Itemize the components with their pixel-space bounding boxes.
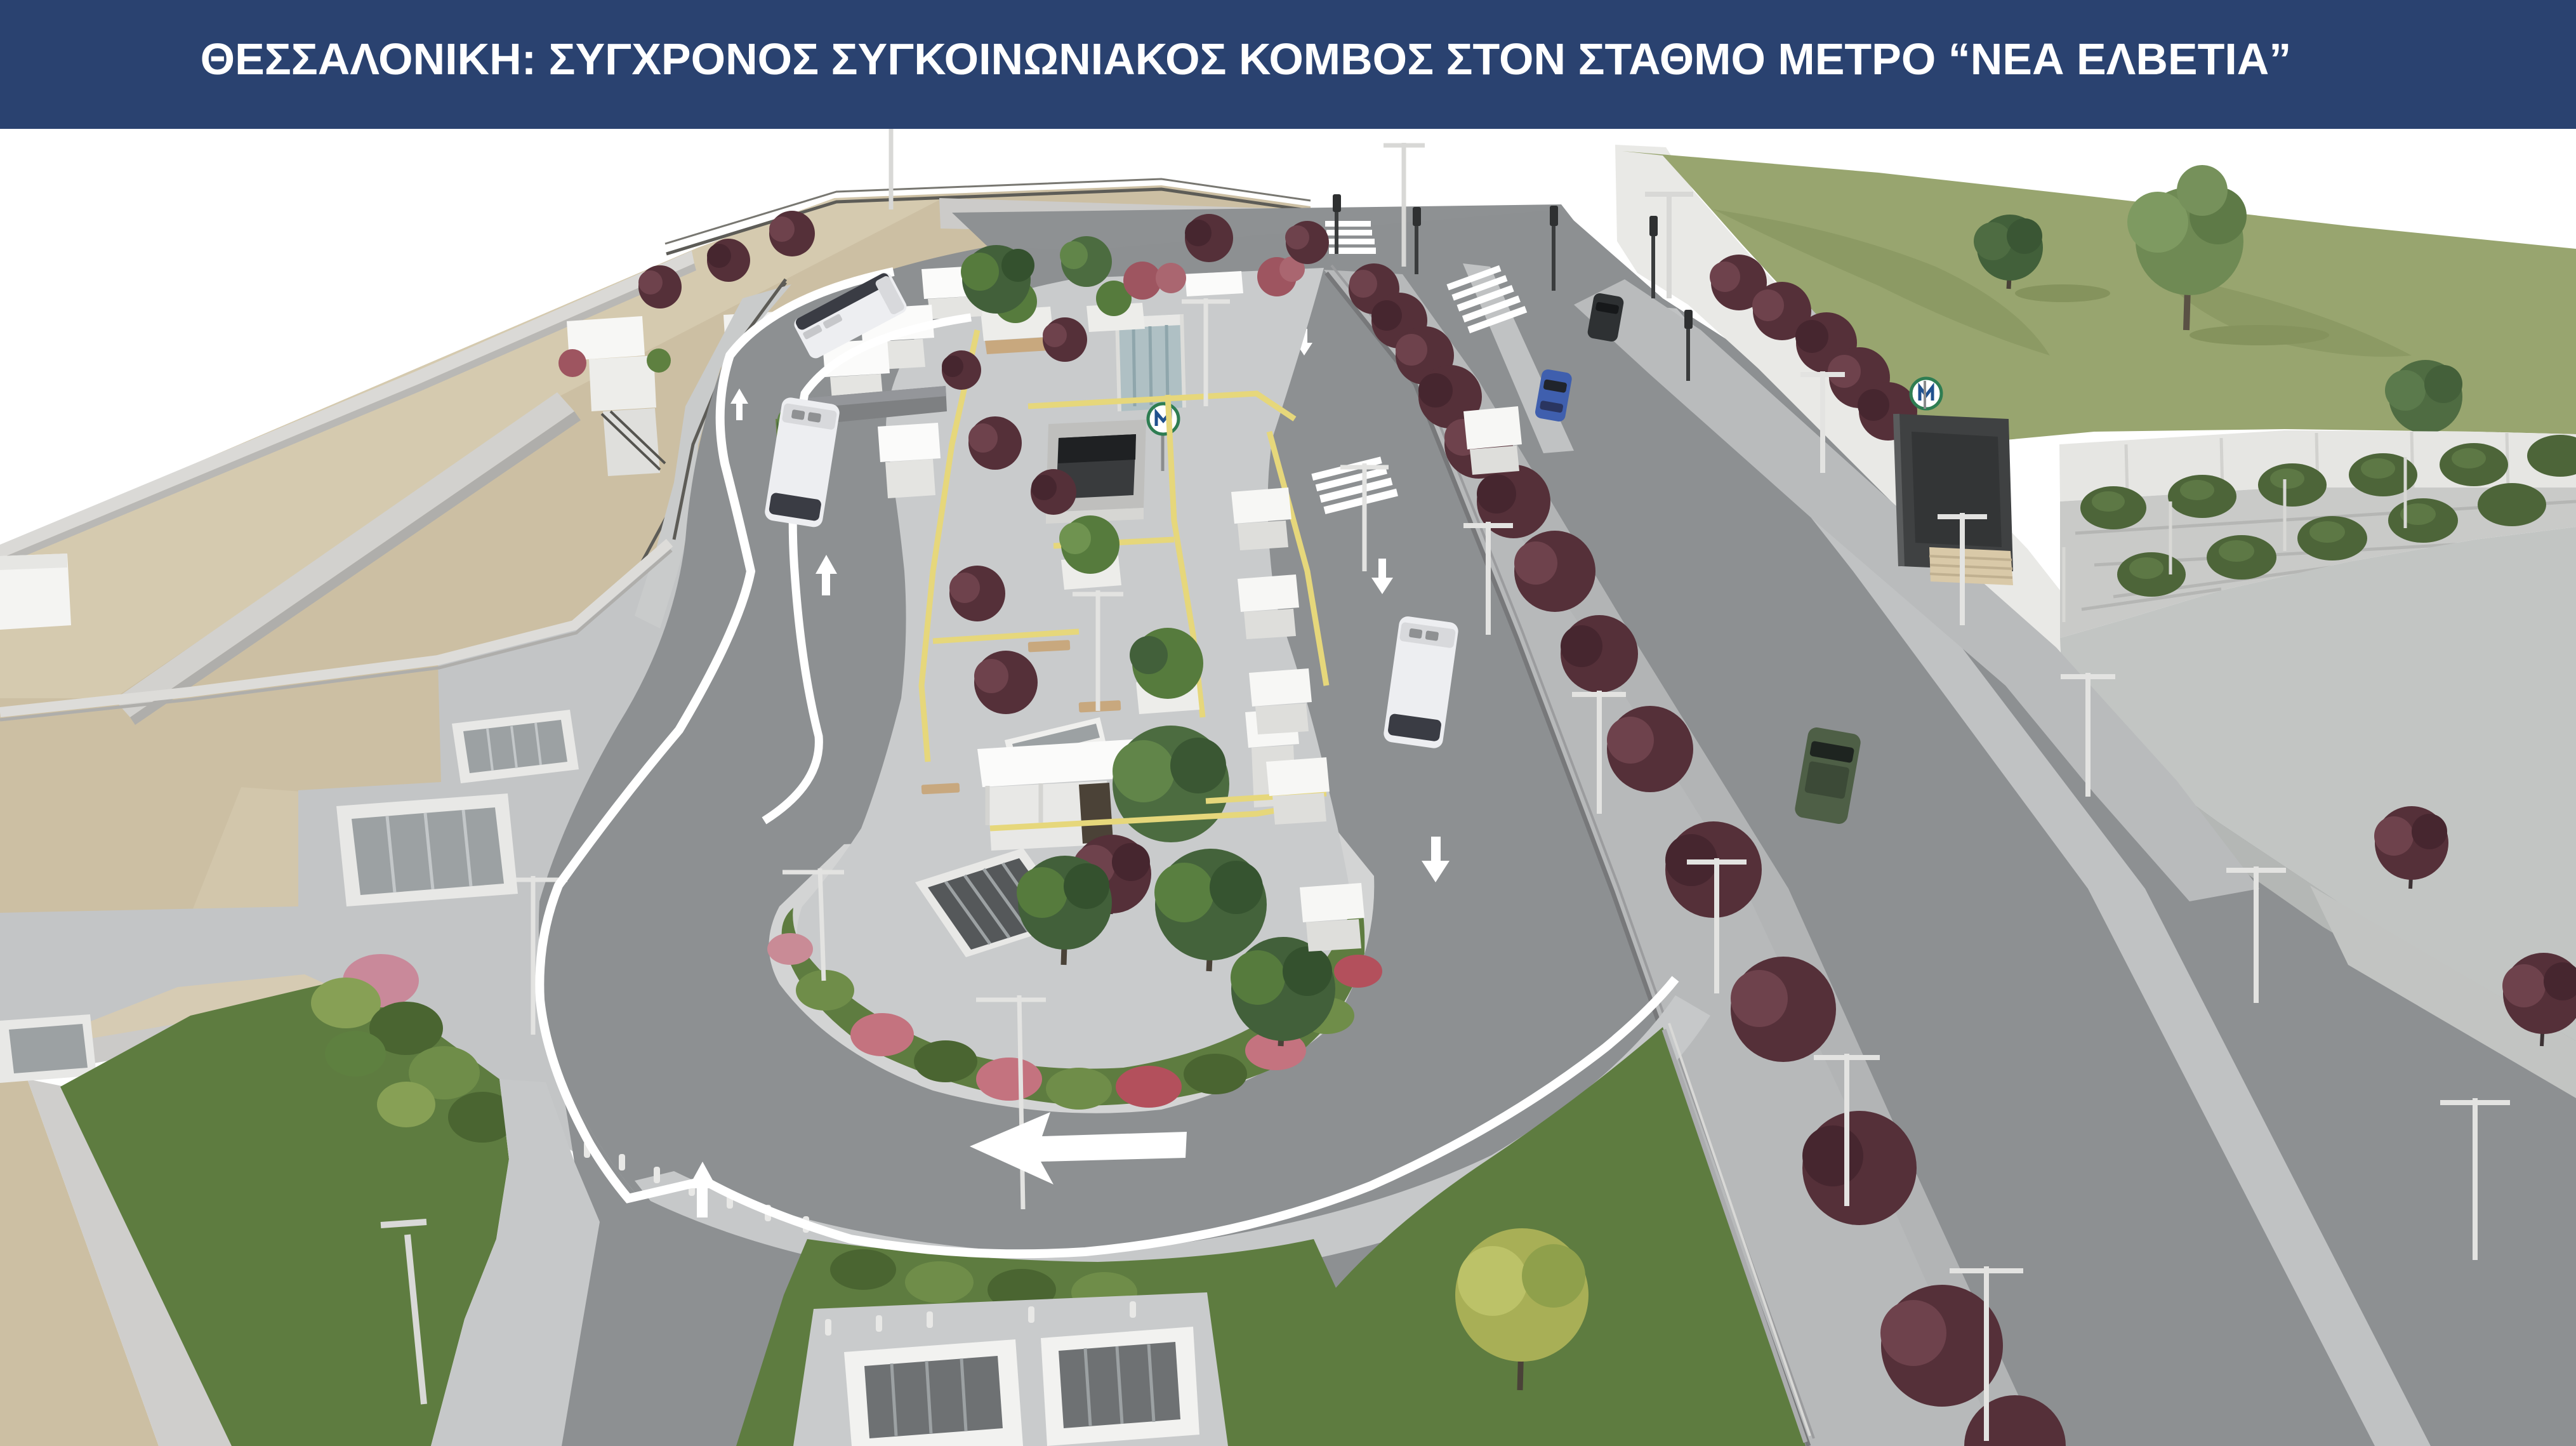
svg-text:ΘΕΣΣΑΛΟΝΙΚΗ: ΣΥΓΧΡΟΝΟΣ ΣΥΓΚΟΙΝ: ΘΕΣΣΑΛΟΝΙΚΗ: ΣΥΓΧΡΟΝΟΣ ΣΥΓΚΟΙΝΩΝΙΑΚΟΣ ΚΟ…	[201, 34, 2292, 84]
